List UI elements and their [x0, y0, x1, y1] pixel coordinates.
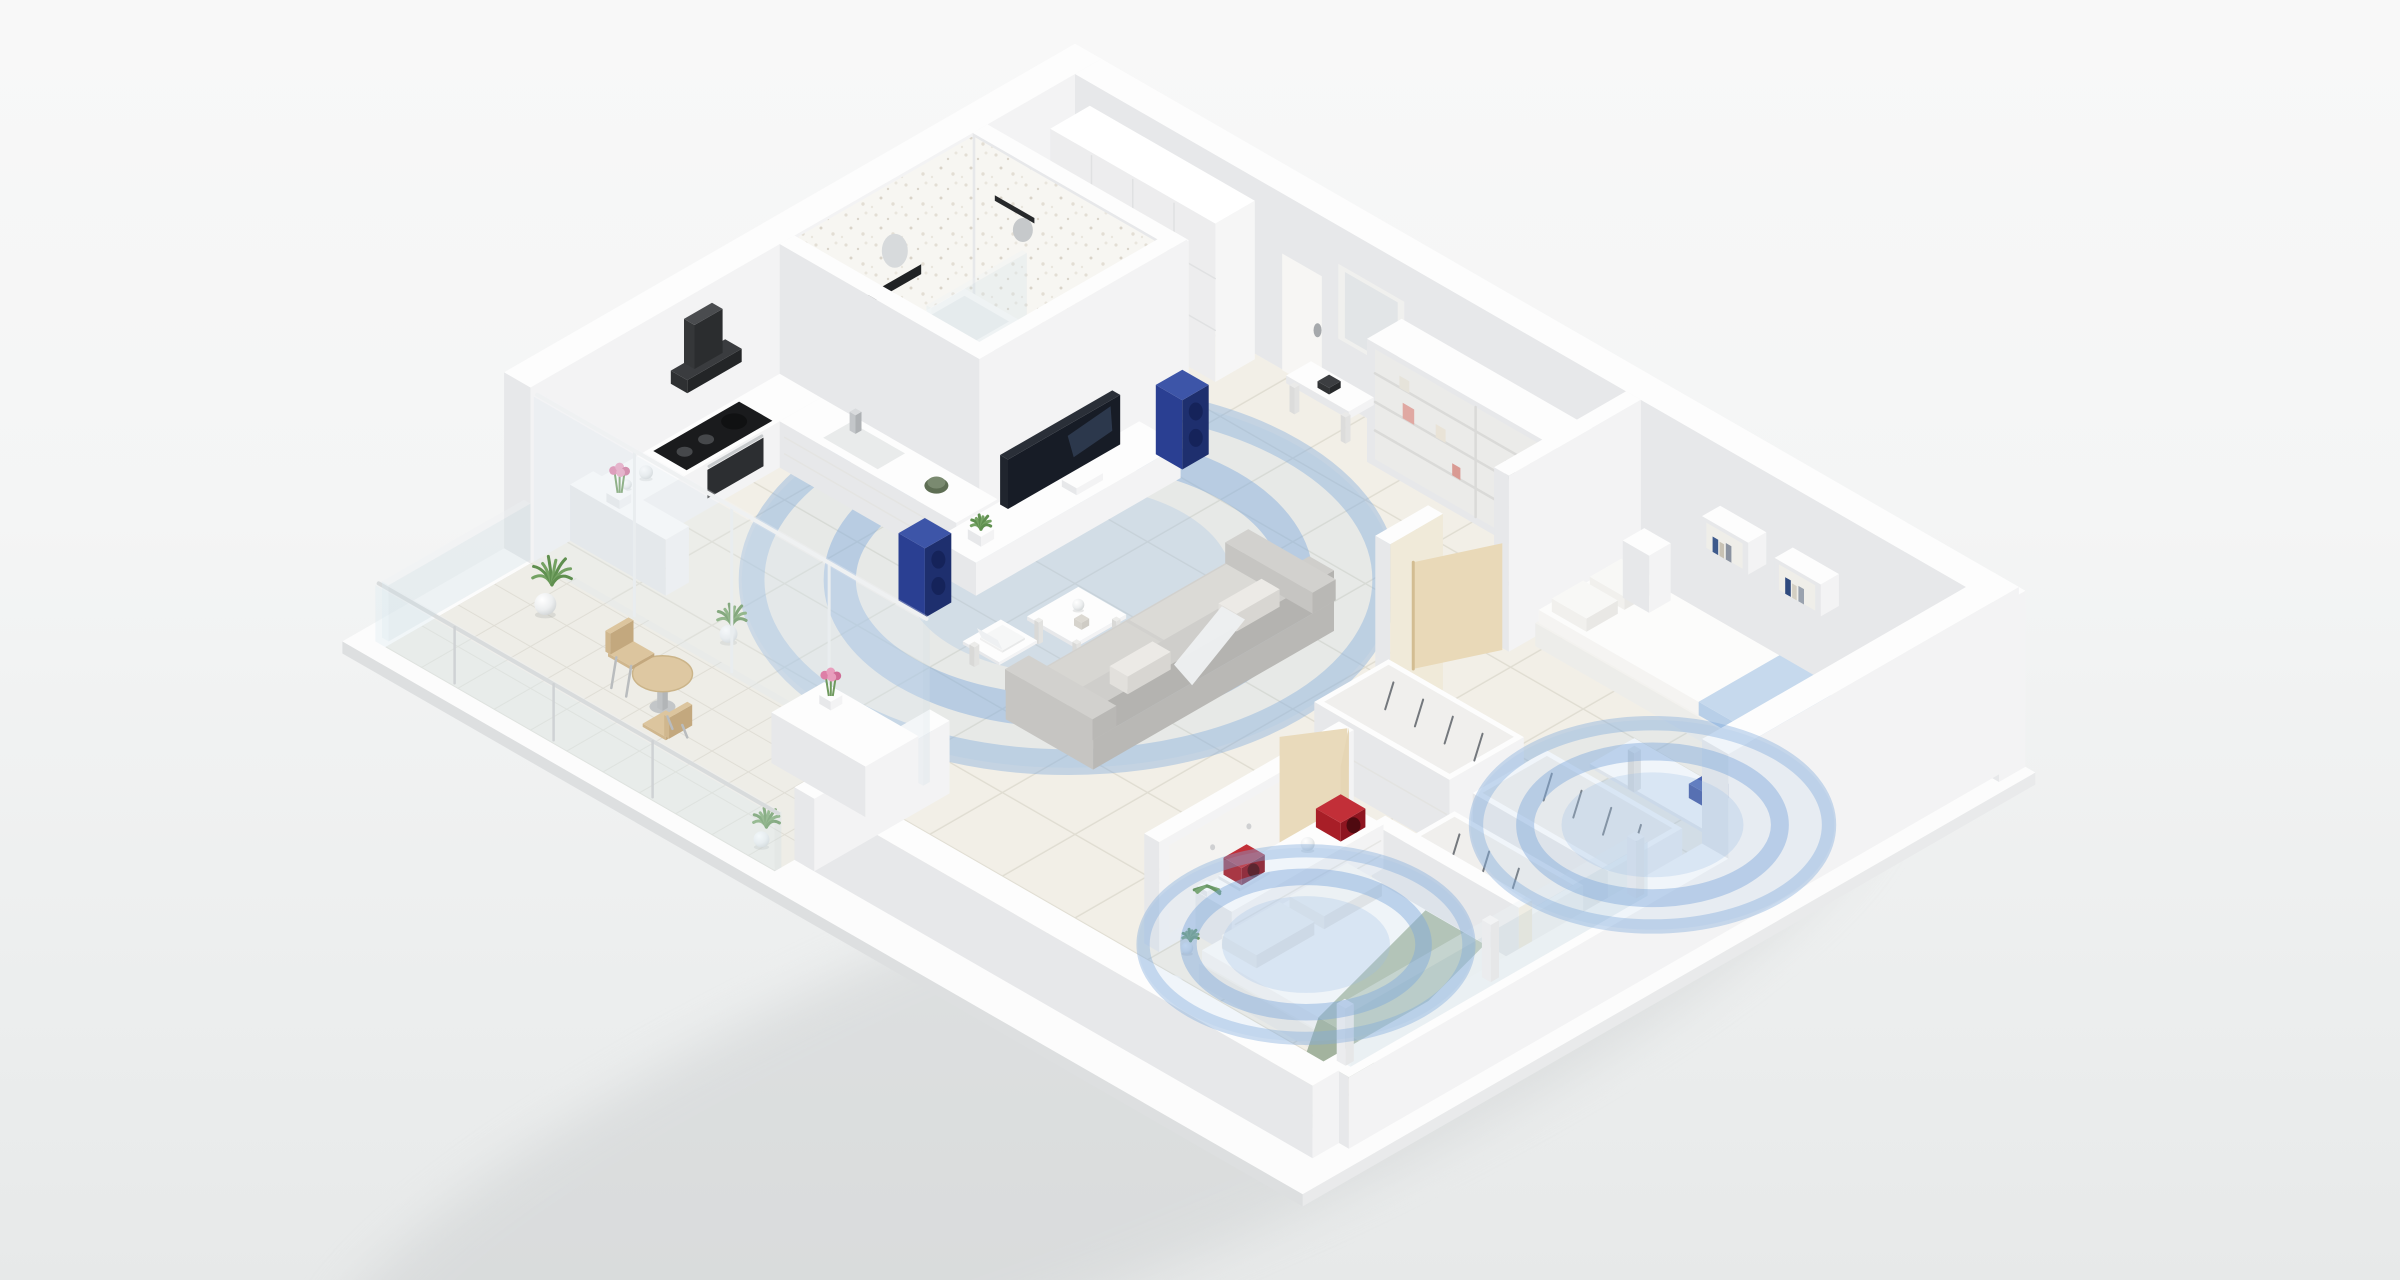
isometric-apartment-illustration	[0, 0, 2400, 1280]
speaker-driver	[1189, 402, 1203, 420]
burner	[677, 447, 693, 457]
shelf-book	[1798, 586, 1804, 605]
hall-console-leg	[1290, 382, 1300, 414]
coverage-master-bedroom	[1138, 848, 1474, 1041]
entry-door-handle	[1314, 323, 1322, 337]
apartment-cutaway-render	[0, 0, 2400, 1280]
speaker-driver	[1347, 817, 1361, 833]
peg	[1210, 844, 1215, 850]
shelf-book	[1792, 583, 1797, 600]
speaker-driver	[931, 551, 945, 569]
tower-speaker-right	[1156, 370, 1209, 470]
shelf-book	[1720, 542, 1725, 559]
coverage-office	[1471, 720, 1835, 930]
sink-faucet	[850, 408, 862, 434]
speaker-driver	[931, 577, 945, 595]
shelf-book	[1726, 543, 1732, 563]
bath-round-mirror	[882, 234, 908, 268]
burner	[698, 434, 714, 444]
frying-pan	[721, 413, 747, 429]
office-door-open	[1413, 543, 1502, 669]
balcony-plant-pot	[534, 593, 556, 618]
nightstand	[1623, 528, 1671, 613]
speaker-driver	[1189, 429, 1203, 447]
shelf-book	[1785, 577, 1791, 597]
green-bowl-rim	[927, 477, 945, 489]
hall-console-leg	[1341, 412, 1351, 444]
towel-ring	[1013, 218, 1033, 242]
side-table-leg	[969, 642, 979, 668]
peg	[1246, 823, 1251, 829]
table-decor-vase	[1072, 599, 1084, 613]
balustrade-post	[1482, 915, 1499, 982]
tower-speaker-left	[899, 518, 952, 618]
